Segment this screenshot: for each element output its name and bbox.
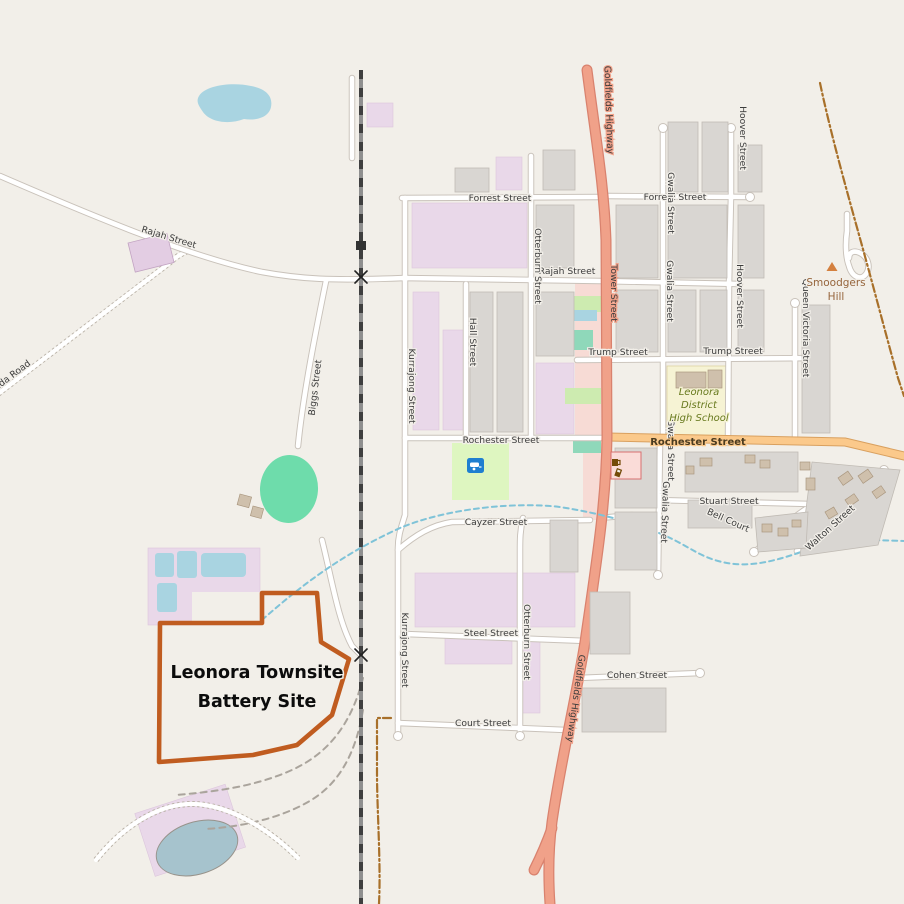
street-label-hoover-s: Hoover Street <box>734 264 745 328</box>
street-label-kurrajong-n: Kurrajong Street <box>406 348 417 423</box>
street-label-gwalia-1: Gwalia Street <box>665 172 676 234</box>
pond <box>198 84 272 122</box>
street-label-tower: Tower Street <box>608 263 619 322</box>
caravan-site-icon <box>467 458 484 473</box>
street-label-rochester-w: Rochester Street <box>463 435 540 446</box>
street-label-hall: Hall Street <box>467 318 478 367</box>
street-label-gwalia-4: Gwalia Street <box>658 481 671 544</box>
smoodgers-hill-label-1: Smoodgers <box>806 277 865 289</box>
street-label-trump-w: Trump Street <box>587 347 648 358</box>
street-label-cohen: Cohen Street <box>607 670 668 681</box>
street-label-forrest-w: Forrest Street <box>469 193 532 204</box>
street-label-trump-e: Trump Street <box>702 346 763 357</box>
battery-site-label-1: Leonora Townsite <box>171 663 344 683</box>
swimming-pool <box>155 553 174 577</box>
street-label-kurrajong-s: Kurrajong Street <box>399 612 410 687</box>
map-canvas[interactable]: Forrest Street Forrest Street Rajah Stre… <box>0 0 904 904</box>
street-label-stuart: Stuart Street <box>699 496 759 507</box>
street-label-otterburn-n: Otterburn Street <box>532 228 543 304</box>
street-label-rajah-town: Rajah Street <box>539 266 596 277</box>
street-label-steel: Steel Street <box>464 628 519 639</box>
street-label-cayzer: Cayzer Street <box>465 517 528 528</box>
street-label-court: Court Street <box>455 718 511 729</box>
street-label-hoover-n: Hoover Street <box>737 106 748 170</box>
street-label-queen-victoria: Queen Victoria Street <box>800 279 811 378</box>
street-label-otterburn-s: Otterburn Street <box>521 604 532 680</box>
road-trump-street <box>577 358 821 360</box>
street-label-gwalia-3: Gwalia Street <box>665 419 676 481</box>
swimming-pool <box>201 553 246 577</box>
school-label-2: District <box>681 400 718 411</box>
swimming-pool <box>157 583 177 612</box>
school-label-3: High School <box>669 413 729 424</box>
street-label-gwalia-2: Gwalia Street <box>664 260 675 322</box>
smoodgers-hill-label-2: Hill <box>828 291 845 303</box>
swimming-pool <box>177 551 197 578</box>
map-svg[interactable]: Forrest Street Forrest Street Rajah Stre… <box>0 0 904 904</box>
street-label-rochester-e: Rochester Street <box>650 437 746 448</box>
school-label-1: Leonora <box>679 387 720 398</box>
battery-site-label-2: Battery Site <box>198 692 317 712</box>
